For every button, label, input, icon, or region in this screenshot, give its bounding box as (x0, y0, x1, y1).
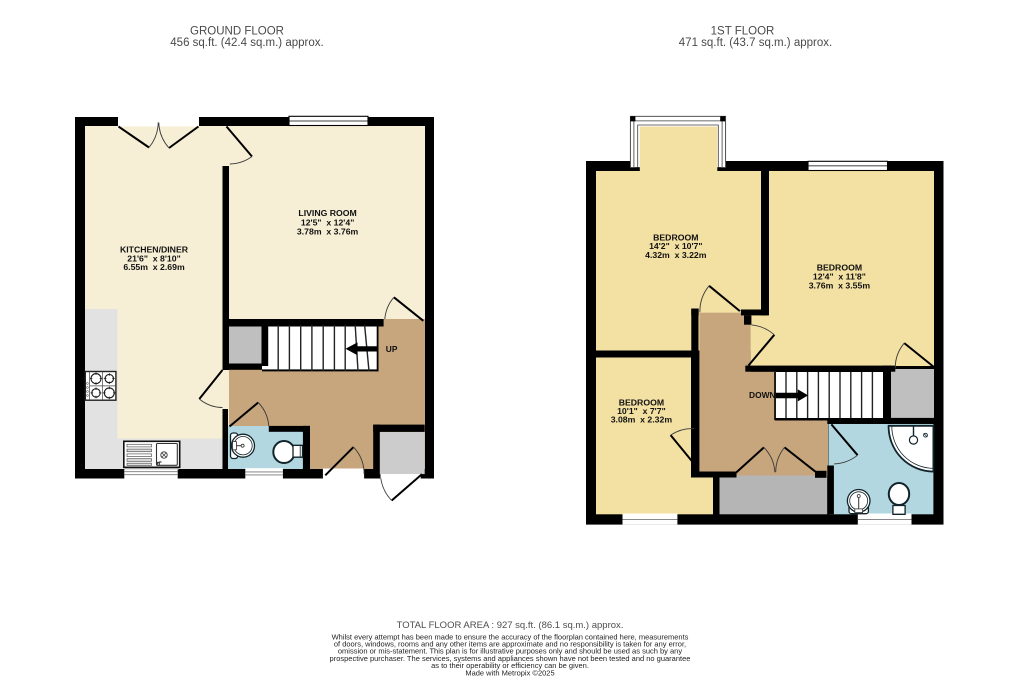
svg-text:456 sq.ft. (42.4 sq.m.) approx: 456 sq.ft. (42.4 sq.m.) approx. (170, 37, 323, 49)
svg-text:DOWN: DOWN (749, 390, 776, 400)
svg-text:TOTAL FLOOR AREA : 927 sq.ft.: TOTAL FLOOR AREA : 927 sq.ft. (86.1 sq.m… (397, 620, 624, 631)
svg-text:Made with Metropix ©2025: Made with Metropix ©2025 (465, 668, 554, 677)
svg-text:1ST FLOOR: 1ST FLOOR (711, 26, 775, 38)
svg-text:3.78m x 3.76m: 3.78m x 3.76m (297, 226, 359, 236)
svg-text:4.32m x 3.22m: 4.32m x 3.22m (645, 250, 707, 260)
svg-text:GROUND FLOOR: GROUND FLOOR (190, 26, 284, 38)
svg-text:6.55m x 2.69m: 6.55m x 2.69m (123, 262, 185, 272)
svg-text:471 sq.ft. (43.7 sq.m.) approx: 471 sq.ft. (43.7 sq.m.) approx. (679, 37, 832, 49)
svg-text:UP: UP (386, 344, 398, 354)
svg-text:3.76m x 3.55m: 3.76m x 3.55m (809, 280, 871, 290)
svg-text:3.08m x 2.32m: 3.08m x 2.32m (611, 414, 673, 424)
